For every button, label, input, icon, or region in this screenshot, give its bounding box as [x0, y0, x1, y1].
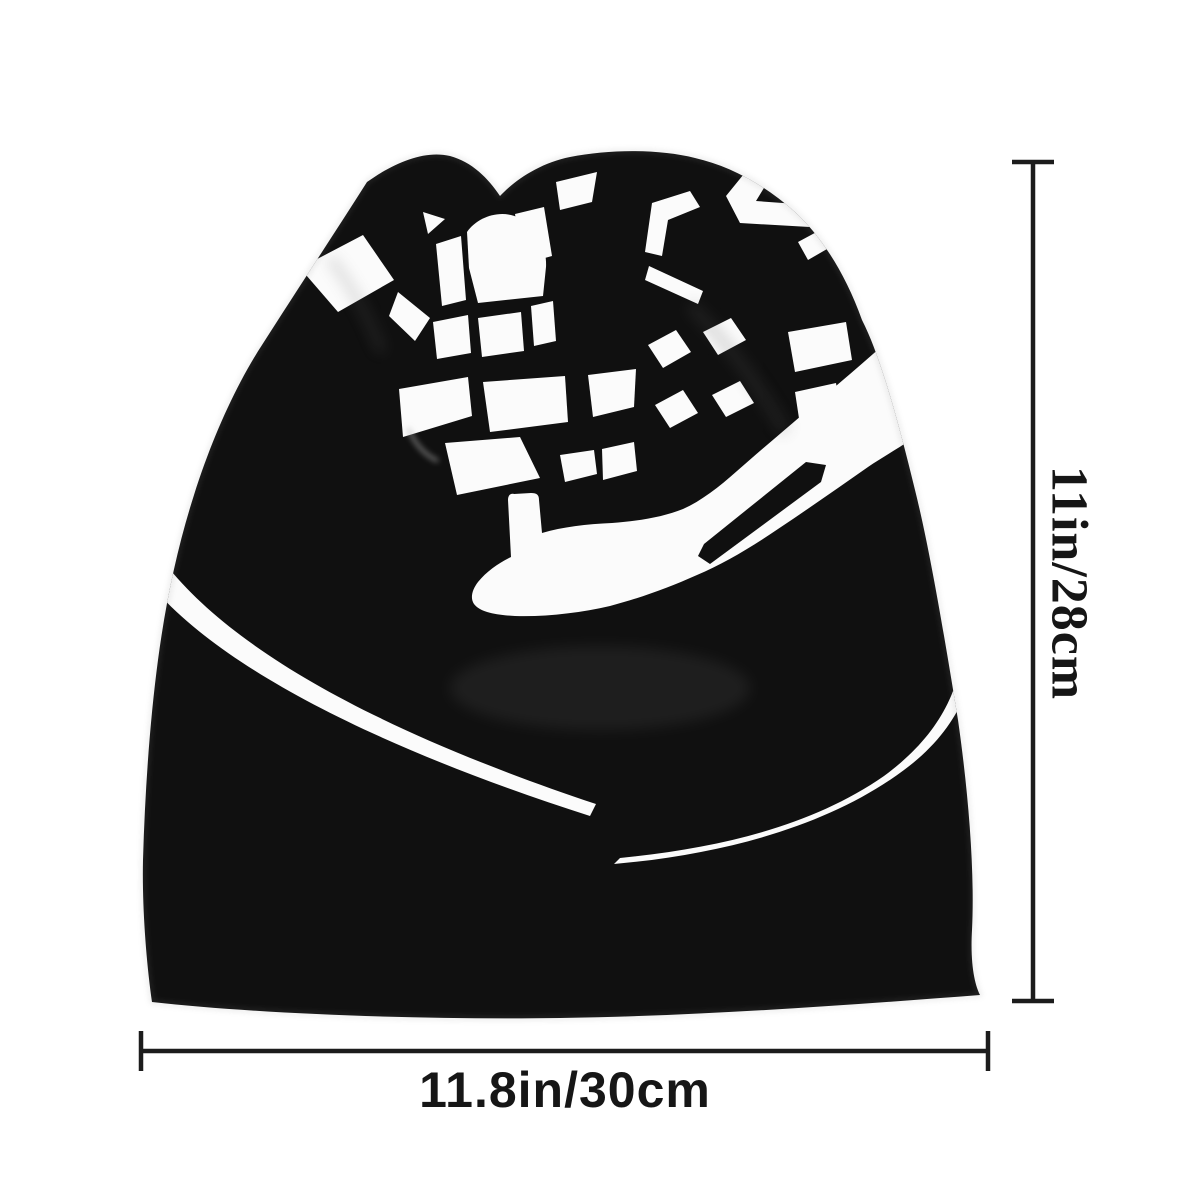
- flag-panel: [478, 312, 524, 357]
- product-photo-svg: 11in/28cm 11.8in/30cm: [0, 0, 1200, 1200]
- product-image: 11in/28cm 11.8in/30cm: [0, 0, 1200, 1200]
- width-dimension-label: 11.8in/30cm: [419, 1062, 711, 1118]
- flag-panel: [433, 315, 471, 359]
- flag-checker: [483, 376, 568, 432]
- height-dimension-label: 11in/28cm: [1041, 466, 1098, 700]
- beanie-hat-photo: [143, 151, 980, 1018]
- flag-panel: [531, 301, 556, 346]
